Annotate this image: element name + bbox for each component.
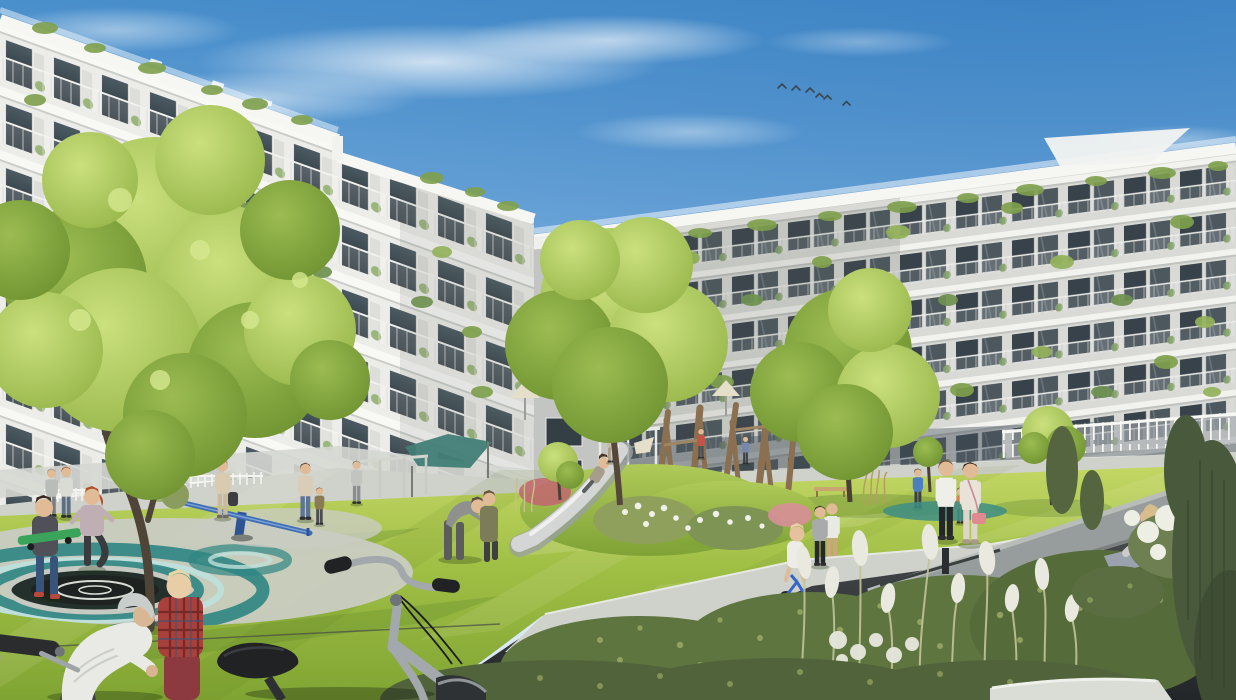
- courtyard-architectural-rendering: [0, 0, 1236, 700]
- trampoline: [9, 568, 181, 612]
- coral-handbag: [972, 513, 986, 524]
- shoulder-bag: [228, 492, 238, 506]
